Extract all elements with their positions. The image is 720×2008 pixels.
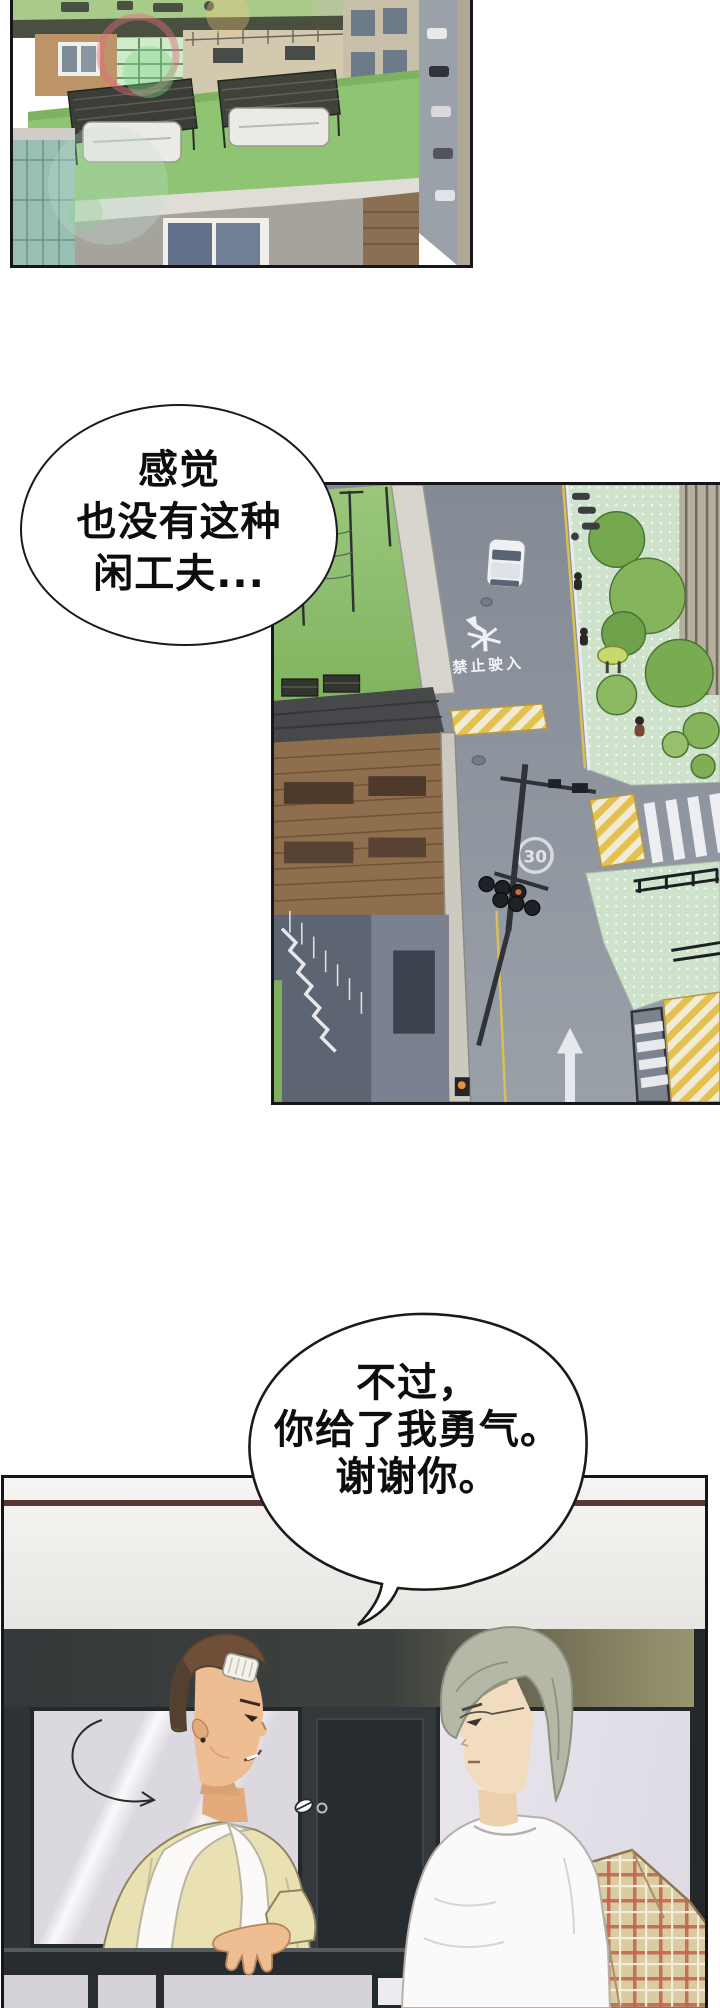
leaf-doodle-icon: [293, 1797, 314, 1815]
earring: [200, 1737, 205, 1742]
bubble2-line1: 不过，: [230, 1360, 605, 1407]
bubble1-line2: 也没有这种: [22, 496, 336, 548]
motion-arrow-icon: [72, 1720, 154, 1806]
svg-text:30: 30: [523, 846, 547, 866]
panel-rooftop: [10, 0, 473, 268]
panel-street: 禁止驶入 30: [271, 482, 720, 1105]
bubble2-line2: 你给了我勇气。: [230, 1407, 605, 1454]
right-man: [402, 1627, 708, 2008]
speech-bubble-1: 感觉 也没有这种 闲工夫...: [20, 404, 338, 646]
comic-page: 感觉 也没有这种 闲工夫...: [0, 0, 720, 2008]
street-scene-art: 禁止驶入 30: [274, 485, 720, 1102]
door-knob: [318, 1804, 327, 1813]
bubble1-line3: 闲工夫...: [22, 548, 336, 600]
bubble1-line1: 感觉: [22, 444, 336, 496]
speech-bubble-2: 不过， 你给了我勇气。 谢谢你。: [230, 1300, 605, 1645]
bubble2-line3: 谢谢你。: [230, 1454, 605, 1501]
rooftop-scene-art: [13, 0, 470, 265]
speech-bubble-2-text: 不过， 你给了我勇气。 谢谢你。: [230, 1360, 605, 1501]
building-cutaway-stairs: [274, 911, 449, 1102]
yellow-striped-zone-bottom: [663, 992, 720, 1102]
ladder-crosswalk-bottom: [632, 1008, 670, 1102]
white-car: [486, 538, 526, 588]
speech-bubble-1-text: 感觉 也没有这种 闲工夫...: [22, 444, 336, 600]
